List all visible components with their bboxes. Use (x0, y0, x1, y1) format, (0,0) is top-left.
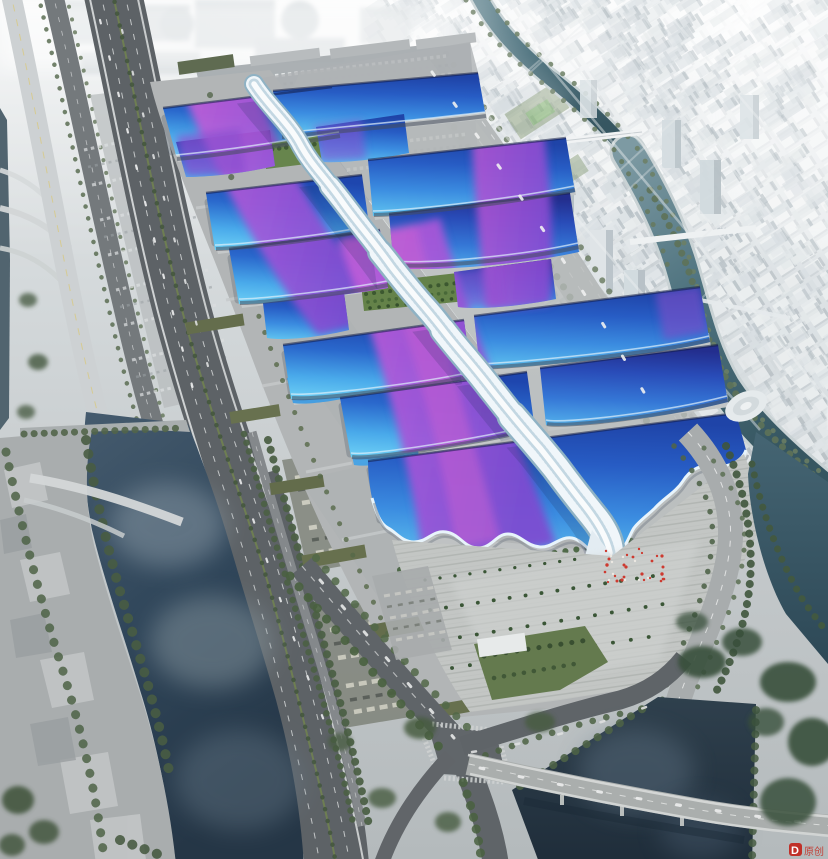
svg-text:D: D (791, 845, 799, 857)
svg-text:原创: 原创 (804, 845, 824, 858)
